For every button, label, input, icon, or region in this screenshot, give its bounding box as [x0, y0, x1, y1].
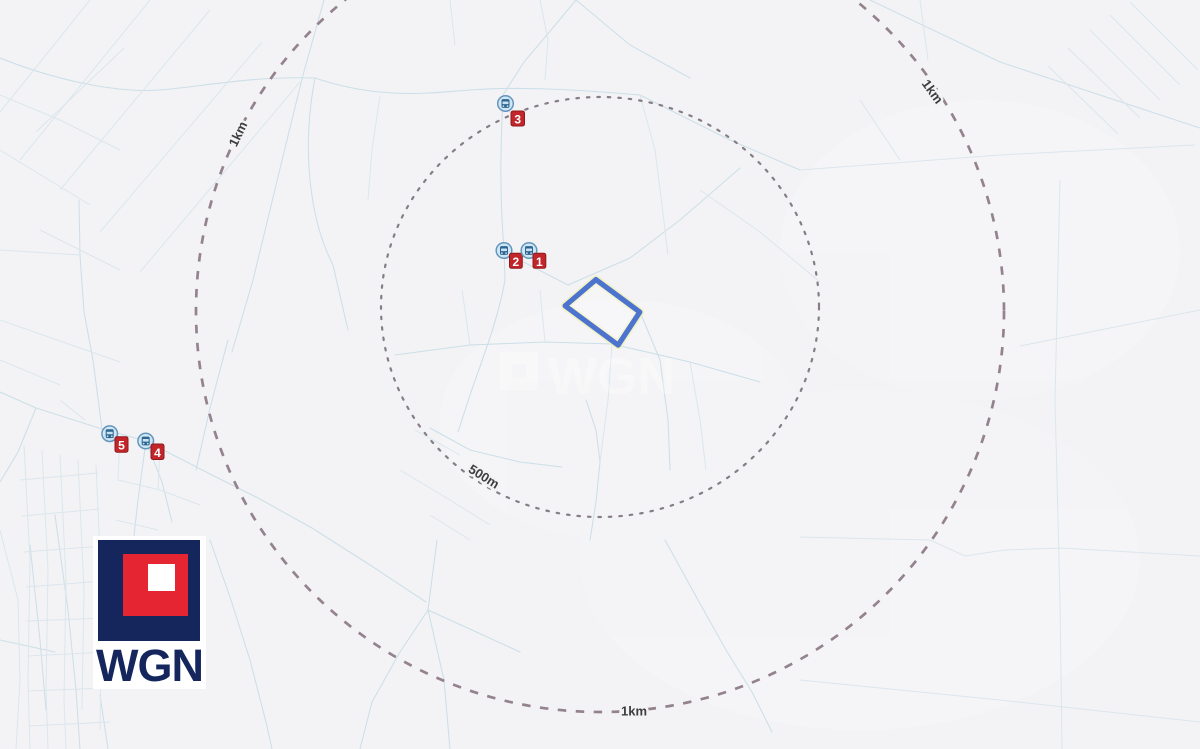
svg-text:1: 1 — [536, 255, 543, 269]
svg-text:3: 3 — [514, 113, 521, 127]
svg-text:2: 2 — [513, 255, 520, 269]
svg-text:5: 5 — [118, 439, 125, 453]
svg-text:WGN: WGN — [96, 640, 203, 691]
svg-text:4: 4 — [154, 446, 161, 460]
svg-text:1km: 1km — [621, 704, 647, 719]
svg-text:WGN: WGN — [548, 348, 675, 406]
